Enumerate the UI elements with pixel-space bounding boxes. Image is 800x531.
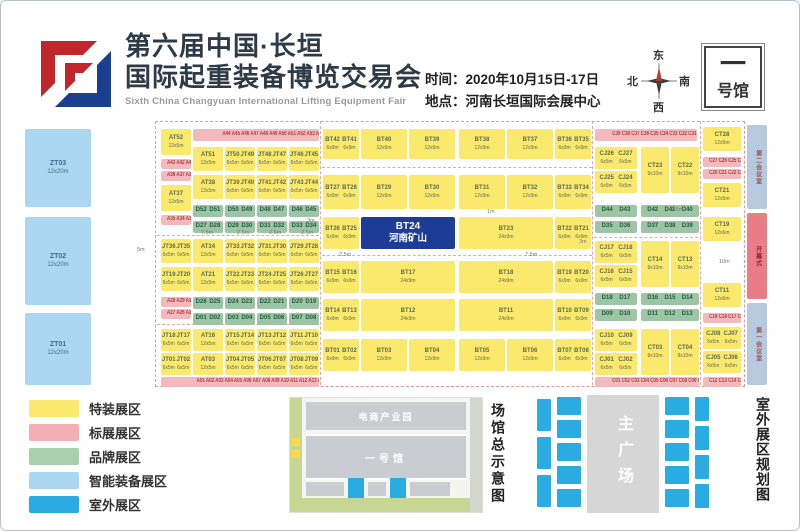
booth-line: 6x9m xyxy=(326,193,338,199)
booth-ct22: CT229x10m xyxy=(671,147,699,193)
booth-line: 6x5m xyxy=(600,365,612,371)
booth-text: D11 xyxy=(647,311,658,318)
booth-line: 9x10m xyxy=(677,353,692,359)
fair-logo xyxy=(35,37,117,111)
booth-text: D16 xyxy=(647,295,658,302)
booth-line: BT02 xyxy=(342,348,357,355)
booth-text: JT176x5m xyxy=(176,333,190,346)
booth-text: AT2112x5m xyxy=(200,272,215,285)
booth-line: 6x5m xyxy=(291,280,303,286)
legend-swatch xyxy=(29,496,79,513)
legend-item-4: 室外展区 xyxy=(29,495,167,514)
outdoor-booth xyxy=(695,484,709,508)
booth-text: D08 xyxy=(305,315,316,322)
outdoor-zone-plan: 主广场 xyxy=(537,395,713,513)
booth-line: 6x5m xyxy=(600,159,612,165)
booth-line: CJ26 xyxy=(599,151,613,158)
booth-line: CJ05 xyxy=(706,355,720,362)
booth-line: BT27 xyxy=(325,185,340,192)
booth-text: JT026x5m xyxy=(176,357,190,370)
booth-line: 12x9m xyxy=(376,145,391,151)
booth-a35-a32: A35 A34 A33 A32 xyxy=(161,215,191,225)
booth-line: BT39 xyxy=(425,137,440,144)
booth-line: 6x5m xyxy=(241,341,253,347)
booth-line: JT18 xyxy=(162,333,176,340)
booth-jt26-jt27: JT266x5mJT276x5m xyxy=(289,267,319,291)
booth-line: JT20 xyxy=(176,272,190,279)
booth-line: 12x5m xyxy=(200,280,215,286)
booth-text: D45 xyxy=(305,207,316,214)
outdoor-booth xyxy=(537,475,551,507)
booth-text: D04 xyxy=(241,315,252,322)
booth-line: JT09 xyxy=(304,357,318,364)
booth-bt24: BT24河南矿山 xyxy=(361,217,455,249)
booth-line: CT11 xyxy=(715,288,729,295)
booth-line: JT10 xyxy=(304,333,318,340)
booth-text: JT146x5m xyxy=(240,333,254,346)
booth-line: CT14 xyxy=(648,257,663,264)
booth-line: JT36 xyxy=(162,244,176,251)
booth-text: JT126x5m xyxy=(272,333,286,346)
booth-line: 6x5m xyxy=(259,280,271,286)
booth-line: D38 xyxy=(664,223,675,230)
booth-line: D25 xyxy=(209,299,220,306)
compass-west: 西 xyxy=(653,99,664,115)
outdoor-booth xyxy=(665,397,689,415)
booth-line: 6x5m xyxy=(619,253,631,259)
booth-line: CJ02 xyxy=(618,357,632,364)
booth-line: 24x9m xyxy=(400,316,415,322)
booth-d37-d39: D37D38D39 xyxy=(641,221,699,233)
booth-line: D50 xyxy=(228,207,239,214)
compass-north: 北 xyxy=(627,73,638,89)
booth-text: CJ176x5m xyxy=(599,245,613,258)
booth-text: CT139x10m xyxy=(677,257,692,270)
booth-line: 6x5m xyxy=(241,252,253,258)
booth-bt27-bt28: BT276x9mBT286x9m xyxy=(323,175,359,209)
booth-bt11: BT1124x9m xyxy=(459,299,553,331)
booth-line: 6x9m xyxy=(558,356,570,362)
booth-cj25-cj24: CJ256x5mCJ246x5m xyxy=(595,171,637,193)
booth-d01-d02: D01D02 xyxy=(193,313,223,325)
booth-text: BT026x9m xyxy=(342,348,357,361)
compass-south: 南 xyxy=(679,73,690,89)
map-blue-block xyxy=(348,478,364,498)
booth-line: AT52 xyxy=(169,135,183,142)
booth-line: BT34 xyxy=(574,185,589,192)
booth-ct19: CT1912x6m xyxy=(703,217,741,241)
booth-line: JT19 xyxy=(162,272,176,279)
booth-line: JT02 xyxy=(176,357,190,364)
booth-text: JT446x5m xyxy=(304,180,318,193)
booth-text: D05 xyxy=(260,315,271,322)
booth-d24-d23: D24D23 xyxy=(225,297,255,309)
booth-line: D49 xyxy=(241,207,252,214)
booth-text: JT226x5m xyxy=(226,272,240,285)
booth-line: D15 xyxy=(664,295,675,302)
booth-line: JT35 xyxy=(176,244,190,251)
booth-line: D35 xyxy=(602,223,613,230)
booth-text: CT049x10m xyxy=(677,345,692,358)
map-blue-block xyxy=(390,478,406,498)
booth-c01-c11: C01 C02 C03 C04 C05 C06 C07 C08 C09 C10 … xyxy=(595,377,699,387)
booth-text: BT3212x9m xyxy=(522,185,537,198)
booth-jt31-jt30: JT316x5mJT306x5m xyxy=(257,239,287,263)
booth-line: 6x5m xyxy=(227,188,239,194)
booth-line: 6x9m xyxy=(558,234,570,240)
booth-line: 6x5m xyxy=(163,280,175,286)
booth-line: 6x5m xyxy=(241,160,253,166)
booth-text: CJ076x5m xyxy=(724,331,738,344)
booth-line: 6x9m xyxy=(575,193,587,199)
booth-line: 6x9m xyxy=(326,356,338,362)
outdoor-booth xyxy=(537,399,551,431)
outdoor-plan-caption: 室外展区规划图 xyxy=(753,397,773,502)
booth-text: BT346x9m xyxy=(574,185,589,198)
booth-text: CJ056x5m xyxy=(706,355,720,368)
booth-text: JT136x5m xyxy=(258,333,272,346)
booth-text: CJ276x5m xyxy=(618,151,632,164)
booth-jt24-jt25: JT246x5mJT256x5m xyxy=(257,267,287,291)
booth-text: BT0512x9m xyxy=(474,348,489,361)
booth-text: BT0312x9m xyxy=(376,348,391,361)
booth-line: JT26 xyxy=(290,272,304,279)
booth-text: CT2812x5m xyxy=(714,132,729,145)
booth-line: CJ09 xyxy=(618,333,632,340)
booth-line: 12x5m xyxy=(168,143,183,149)
booth-line: JT04 xyxy=(226,357,240,364)
booth-d16-d14: D16D15D14 xyxy=(641,293,699,305)
booth-ct28: CT2812x5m xyxy=(703,127,741,151)
map-marker xyxy=(292,450,300,458)
booth-text: JT436x5m xyxy=(290,180,304,193)
booth-text: CT039x10m xyxy=(647,345,662,358)
booth-line: 6x9m xyxy=(326,145,338,151)
booth-line: BT04 xyxy=(425,348,440,355)
booth-ct11: CT1112x6m xyxy=(703,283,741,307)
booth-line: 12x5m xyxy=(200,365,215,371)
booth-line: BT10 xyxy=(557,308,572,315)
booth-text: D03 xyxy=(228,315,239,322)
booth-line: 6x5m xyxy=(291,188,303,194)
booth-line: 6x5m xyxy=(259,188,271,194)
dimension-label: 5m xyxy=(137,247,145,253)
booth-jt39-jt40: JT396x5mJT406x5m xyxy=(225,175,255,199)
booth-line: 6x5m xyxy=(725,363,737,369)
booth-cj01-cj02: CJ016x5mCJ026x5m xyxy=(595,353,637,375)
booth-line: A27 A26 A25 A24 xyxy=(167,310,191,317)
booth-text: ZT0112x20m xyxy=(47,341,68,357)
booth-line: D18 xyxy=(602,295,613,302)
booth-line: D11 xyxy=(647,311,658,318)
booth-line: CT21 xyxy=(715,188,730,195)
booth-text: D10 xyxy=(619,311,630,318)
outdoor-booth xyxy=(557,397,581,415)
booth-line: 6x5m xyxy=(291,160,303,166)
booth-line: 6x9m xyxy=(343,316,355,322)
booth-text: CT1912x6m xyxy=(714,222,729,235)
booth-line: 24x9m xyxy=(498,234,513,240)
booth-text: CJ246x5m xyxy=(618,175,632,188)
booth-jt29-jt28: JT296x5mJT286x5m xyxy=(289,239,319,263)
booth-cj26-cj27: CJ266x5mCJ276x5m xyxy=(595,147,637,169)
booth-text: JT156x5m xyxy=(226,333,240,346)
booth-cj16-cj15: CJ166x5mCJ156x5m xyxy=(595,265,637,287)
booth-line: BT20 xyxy=(574,270,589,277)
booth-bt01-bt02: BT016x9mBT026x9m xyxy=(323,339,359,371)
legend: 特装展区标展展区品牌展区智能装备展区室外展区 xyxy=(29,399,167,519)
booth-line: BT01 xyxy=(325,348,340,355)
booth-text: JT206x5m xyxy=(176,272,190,285)
booth-line: D01 xyxy=(196,315,207,322)
booth-line: JT44 xyxy=(304,180,318,187)
booth-bt37: BT3712x9m xyxy=(507,129,553,159)
booth-text: CJ026x5m xyxy=(618,357,632,370)
booth-a27-a24: A27 A26 A25 A24 xyxy=(161,309,191,319)
booth-text: D18 xyxy=(602,295,613,302)
booth-line: JT43 xyxy=(290,180,304,187)
booth-bt36-bt35: BT366x9mBT356x9m xyxy=(555,129,591,159)
booth-line: 6x5m xyxy=(291,341,303,347)
booth-line: JT06 xyxy=(258,357,272,364)
booth-text: D25 xyxy=(209,299,220,306)
booth-c39-c29: C39 C38 C37 C36 C35 C34 C33 C32 C31 C30 … xyxy=(595,129,697,141)
booth-at37: AT3712x5m xyxy=(161,185,191,211)
booth-text: C01 C02 C03 C04 C05 C06 C07 C08 C09 C10 … xyxy=(595,378,699,385)
booth-d11-d13: D11D12D13 xyxy=(641,309,699,321)
booth-line: 6x5m xyxy=(273,252,285,258)
booth-bt19-bt20: BT196x9mBT206x9m xyxy=(555,261,591,293)
booth-text: CT2112x5m xyxy=(714,188,729,201)
legend-swatch xyxy=(29,424,79,441)
booth-line: 6x5m xyxy=(273,341,285,347)
booth-line: BT22 xyxy=(557,226,572,233)
booth-at51: AT5112x5m xyxy=(193,147,223,171)
booth-text: D26 xyxy=(196,299,207,306)
booth-bt40: BT4012x9m xyxy=(361,129,407,159)
booth-text: JT306x5m xyxy=(272,244,286,257)
map-block xyxy=(306,482,344,496)
booth-bt03: BT0312x9m xyxy=(361,339,407,371)
booth-d05-d06: D05D06 xyxy=(257,313,287,325)
booth-at16: AT1612x5m xyxy=(193,329,223,351)
booth-text: D49 xyxy=(241,207,252,214)
booth-cj17-cj18: CJ176x5mCJ186x5m xyxy=(595,241,637,263)
booth-line: 6x9m xyxy=(575,145,587,151)
booth-text: 第二会议室 xyxy=(753,150,760,185)
booth-line: 6x5m xyxy=(241,365,253,371)
booth-line: 12x9m xyxy=(474,356,489,362)
booth-text: D38 xyxy=(664,223,675,230)
booth-line: 6x5m xyxy=(619,277,631,283)
booth-text: D01 xyxy=(196,315,207,322)
booth-bt10-bt09: BT106x9mBT096x9m xyxy=(555,299,591,331)
booth-line: 6x9m xyxy=(575,356,587,362)
booth-text: D21 xyxy=(273,299,284,306)
booth-text: BT106x9m xyxy=(557,308,572,321)
booth-line: D14 xyxy=(682,295,693,302)
booth-text: ZT0312x20m xyxy=(47,160,68,176)
booth-text: A28 A29 A30 A31 xyxy=(161,298,191,305)
booth-line: BT42 xyxy=(325,137,340,144)
booth-text: D42 xyxy=(647,207,658,214)
booth-text: AT3812x5m xyxy=(200,180,215,193)
booth-d52-d51: D52D51 xyxy=(193,205,223,217)
booth-d26-d25: D26D25 xyxy=(193,297,223,309)
booth-line: D06 xyxy=(273,315,284,322)
booth-line: JT28 xyxy=(304,244,318,251)
booth-line: 12x5m xyxy=(168,199,183,205)
booth-bt18: BT1824x9m xyxy=(459,261,553,293)
booth-c19-c16: C19 C18 C17 C16 xyxy=(703,313,741,323)
booth-line: 6x5m xyxy=(259,365,271,371)
booth-line: CT19 xyxy=(715,222,730,229)
legend-swatch xyxy=(29,472,79,489)
booth-jt50-jt49: JT506x5mJT496x5m xyxy=(225,147,255,171)
booth-zt01: ZT0112x20m xyxy=(25,313,91,385)
booth-at34: AT3412x5m xyxy=(193,239,223,263)
booth-bt04: BT0412x9m xyxy=(409,339,455,371)
floorplan-area: ZT0312x20mZT0212x20mZT0112x20mAT5212x5mA… xyxy=(19,119,781,395)
booth-cj08-cj07: CJ086x5mCJ076x5m xyxy=(703,327,741,349)
dimension-label: 3m xyxy=(579,239,587,245)
booth-text: BT076x9m xyxy=(557,348,572,361)
booth-line: 6x9m xyxy=(326,316,338,322)
booth-line: BT24 xyxy=(396,221,420,233)
booth-line: 6x5m xyxy=(177,252,189,258)
booth-bt12: BT1224x9m xyxy=(361,299,455,331)
booth-ct04: CT049x10m xyxy=(671,329,699,375)
aisle-divider xyxy=(700,121,701,385)
ecommerce-park-block: 电商产业园 xyxy=(306,402,466,430)
booth-text: CJ086x5m xyxy=(706,331,720,344)
booth-line: JT13 xyxy=(258,333,272,340)
booth-line: BT31 xyxy=(475,185,490,192)
booth-line: 12x5m xyxy=(200,252,215,258)
booth-line: D02 xyxy=(209,315,220,322)
booth-line: JT42 xyxy=(272,180,286,187)
booth-line: 12x9m xyxy=(522,356,537,362)
booth-text: JT286x5m xyxy=(304,244,318,257)
booth-line: 6x5m xyxy=(600,183,612,189)
booth-d09-d10: D09D10 xyxy=(595,309,637,321)
booth-text: D07 xyxy=(292,315,303,322)
booth-line: 12x20m xyxy=(47,262,68,269)
booth-line: 12x9m xyxy=(376,356,391,362)
booth-line: D42 xyxy=(647,207,658,214)
booth-bt07-bt08: BT076x9mBT086x9m xyxy=(555,339,591,371)
booth-line: 6x9m xyxy=(326,234,338,240)
booth-text: D13 xyxy=(682,311,693,318)
booth-text: CJ016x5m xyxy=(599,357,613,370)
booth-line: 6x9m xyxy=(558,145,570,151)
booth-text: BT0412x9m xyxy=(424,348,439,361)
booth-line: A43 A42 A41 A40 xyxy=(167,160,191,167)
booth-line: 6x9m xyxy=(575,278,587,284)
booth-line: 12x5m xyxy=(714,140,729,146)
booth-text: BT1224x9m xyxy=(400,308,415,321)
booth-line: CJ25 xyxy=(599,175,613,182)
booth-line: 6x9m xyxy=(575,316,587,322)
booth-text: D02 xyxy=(209,315,220,322)
booth-line: 12x5m xyxy=(200,188,215,194)
booth-line: JT01 xyxy=(162,357,176,364)
booth-line: BT19 xyxy=(557,270,572,277)
booth-line: JT15 xyxy=(226,333,240,340)
hall-one-block: 一号馆 xyxy=(306,434,466,480)
booth-d48-d47: D48D47 xyxy=(257,205,287,217)
booth-d50-d49: D50D49 xyxy=(225,205,255,217)
booth-text: BT4012x9m xyxy=(376,137,391,150)
booth-line: JT50 xyxy=(226,152,240,159)
site-overview-map: 电商产业园 一号馆 xyxy=(289,397,483,513)
booth-line: BT12 xyxy=(401,308,416,315)
booth-line: BT08 xyxy=(574,348,589,355)
outdoor-booth xyxy=(557,489,581,507)
booth-text: BT096x9m xyxy=(574,308,589,321)
booth-line: CT22 xyxy=(678,163,693,170)
booth-line: A36 A37 A38 A39 xyxy=(167,172,191,179)
booth-bt32: BT3212x9m xyxy=(507,175,553,209)
booth-jt01-jt02: JT016x5mJT026x5m xyxy=(161,353,191,375)
outdoor-booth xyxy=(665,466,689,484)
legend-label: 标展展区 xyxy=(89,423,141,442)
title-block: 第六届中国·长垣 国际起重装备博览交易会 Sixth China Changyu… xyxy=(125,31,422,107)
booth-line: BT17 xyxy=(401,270,416,277)
booth-line: JT23 xyxy=(240,272,254,279)
booth-jt46-jt45: JT466x5mJT456x5m xyxy=(289,147,319,171)
booth-line: D44 xyxy=(602,207,613,214)
booth-d20-d19: D20D19 xyxy=(289,297,319,309)
booth-line: 12x20m xyxy=(47,350,68,357)
booth-text: BT416x9m xyxy=(342,137,357,150)
aisle-divider xyxy=(322,167,592,168)
booth-line: ZT03 xyxy=(50,160,66,168)
booth-jt22-jt23: JT226x5mJT236x5m xyxy=(225,267,255,291)
booth-text: CJ186x5m xyxy=(618,245,632,258)
booth-text: BT156x9m xyxy=(325,270,340,283)
map-block xyxy=(368,482,386,496)
booth-line: D17 xyxy=(619,295,630,302)
booth-line: 6x5m xyxy=(163,252,175,258)
booth-line: BT28 xyxy=(342,185,357,192)
booth-line: JT29 xyxy=(290,244,304,251)
booth-bt33-bt34: BT336x9mBT346x9m xyxy=(555,175,591,209)
booth-text: AT3712x5m xyxy=(168,191,183,204)
booth-line: JT11 xyxy=(290,333,303,340)
booth-line: BT35 xyxy=(574,137,589,144)
booth-bt14-bt13: BT146x9mBT136x9m xyxy=(323,299,359,331)
booth-line: ZT01 xyxy=(50,341,66,349)
booth-text: CT239x10m xyxy=(647,163,662,176)
outdoor-booth xyxy=(557,466,581,484)
booth-ct23: CT239x10m xyxy=(641,147,669,193)
booth-text: CT149x10m xyxy=(647,257,662,270)
booth-text: JT416x5m xyxy=(258,180,272,193)
booth-text: D40 xyxy=(682,207,693,214)
booth-text: AT5212x5m xyxy=(168,135,183,148)
booth-bt05: BT0512x9m xyxy=(459,339,505,371)
booth-line: AT34 xyxy=(201,244,215,251)
booth-room-opening: 开幕式 xyxy=(747,213,767,299)
booth-text: BT276x9m xyxy=(325,185,340,198)
booth-jt41-jt42: JT416x5mJT426x5m xyxy=(257,175,287,199)
booth-line: BT15 xyxy=(325,270,340,277)
booth-line: 12x20m xyxy=(47,169,68,176)
booth-line: BT33 xyxy=(557,185,572,192)
booth-line: C39 C38 C37 C36 C35 C34 C33 C32 C31 C30 … xyxy=(612,131,697,138)
booth-line: JT05 xyxy=(240,357,254,364)
